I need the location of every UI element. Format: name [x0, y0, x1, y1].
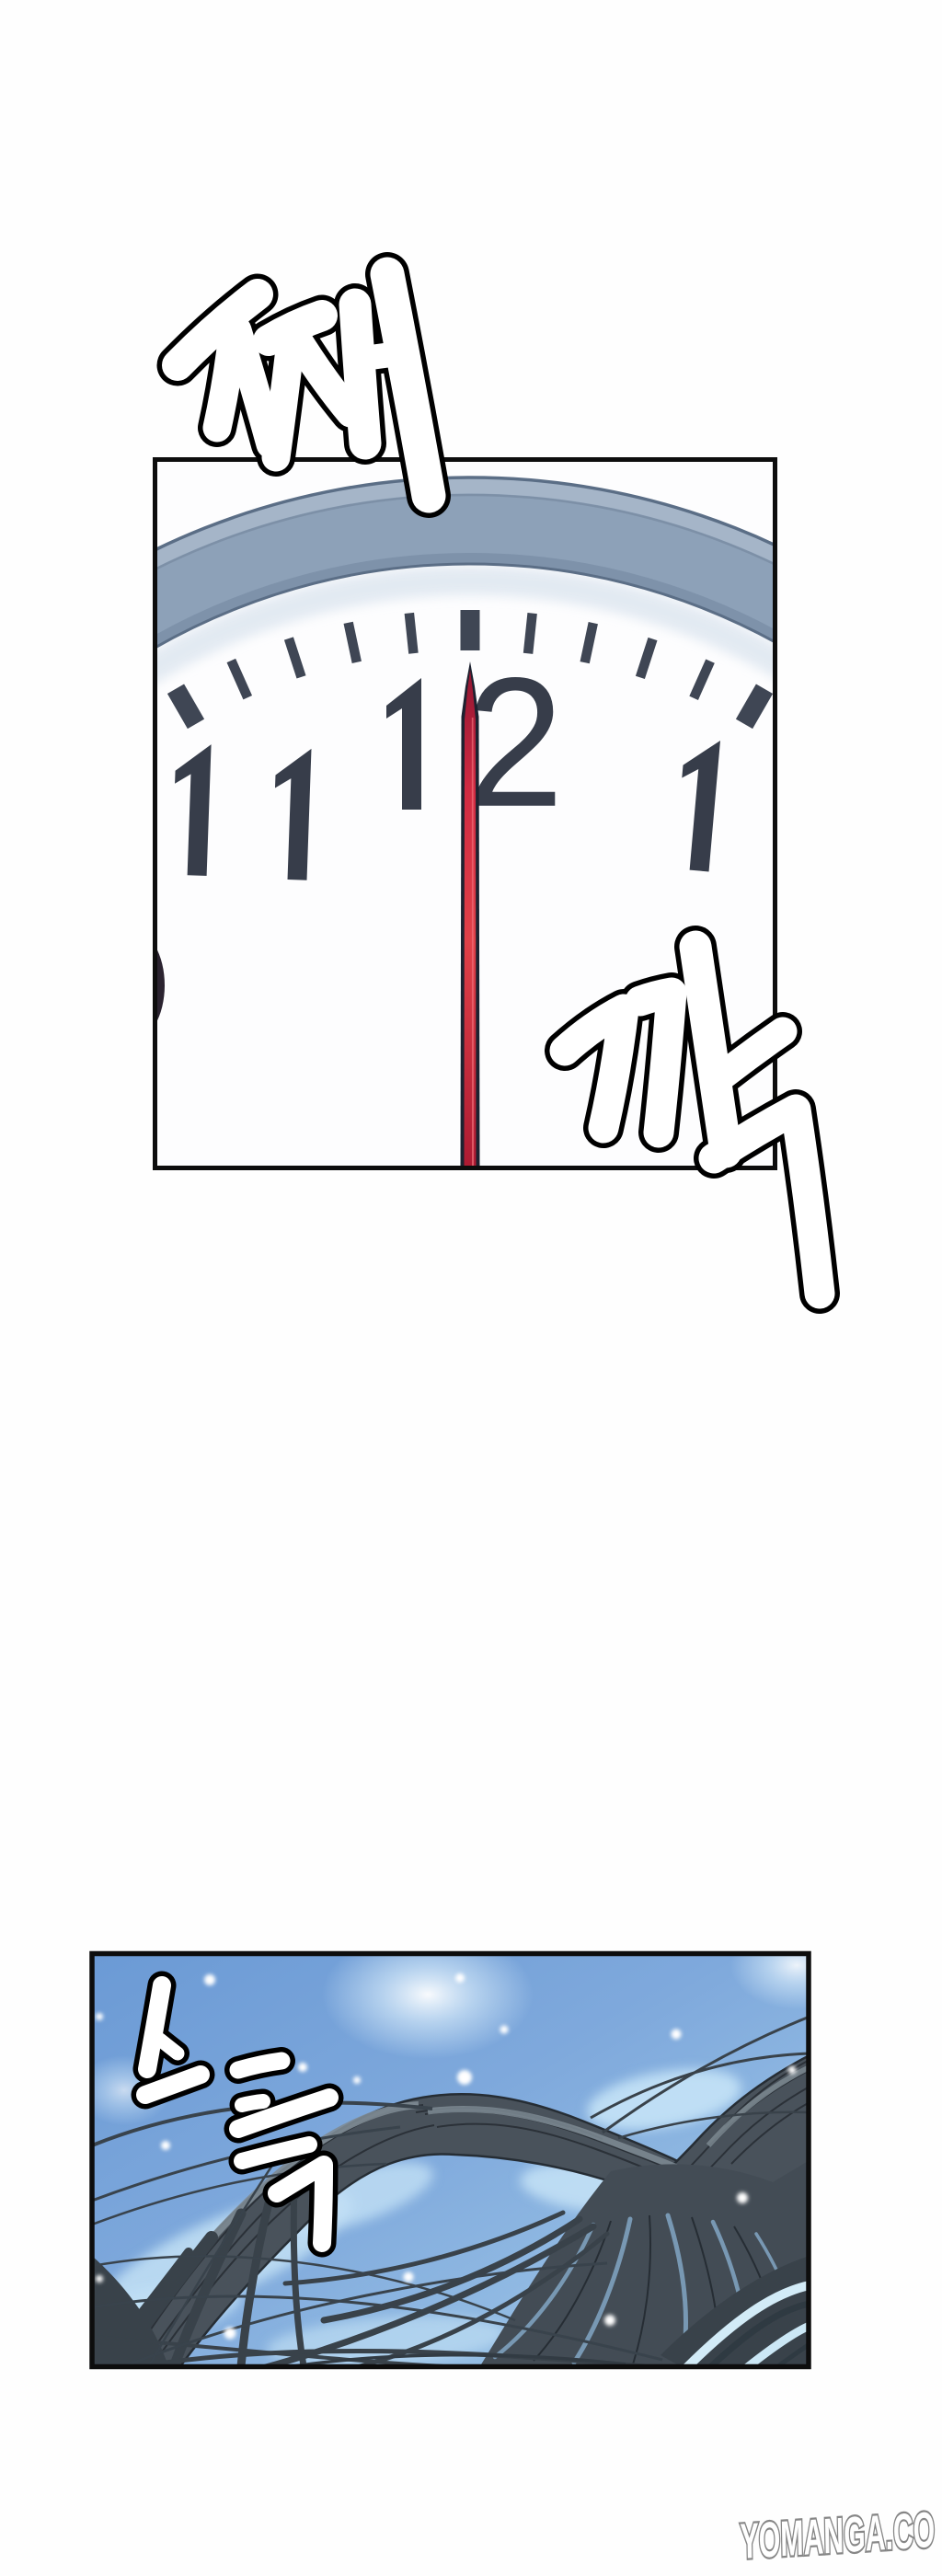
svg-text:2: 2	[466, 639, 564, 845]
